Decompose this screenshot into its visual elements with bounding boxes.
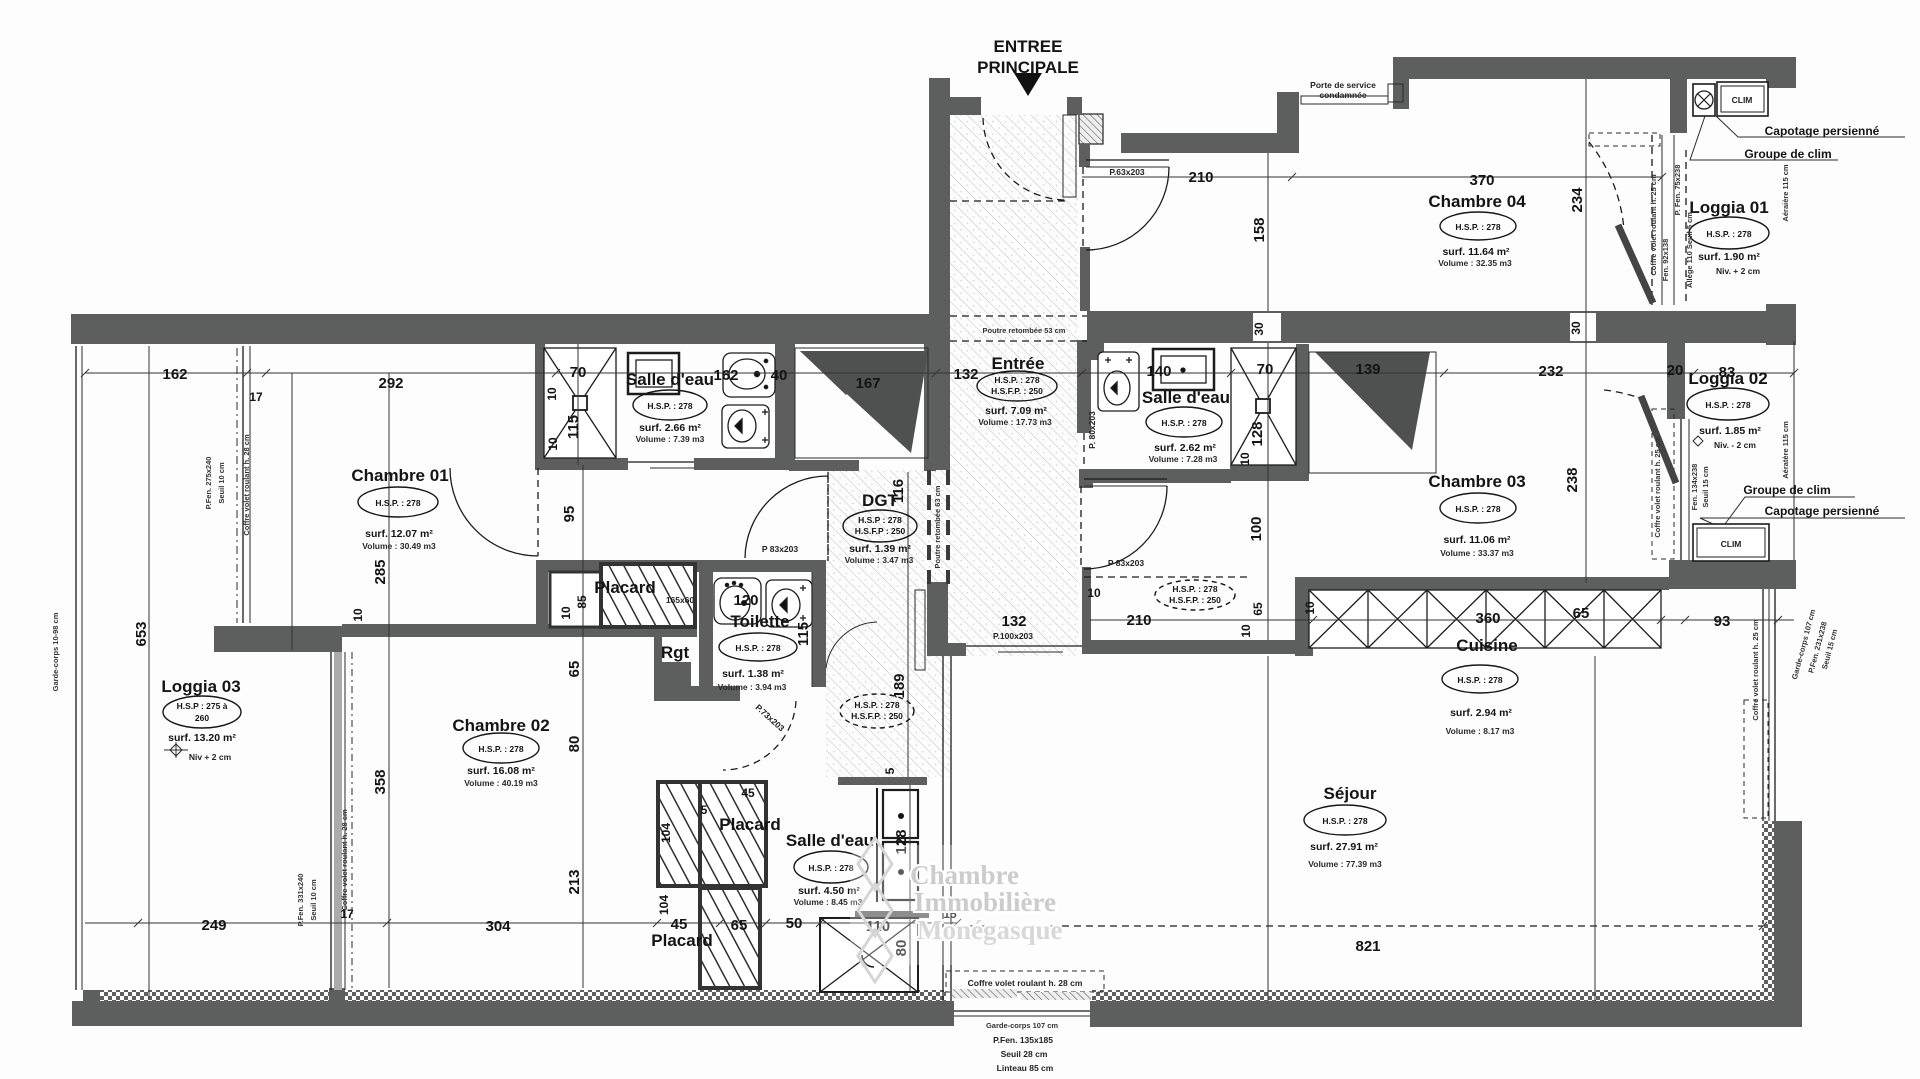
svg-text:Placard: Placard [719, 815, 780, 834]
svg-text:234: 234 [1569, 187, 1586, 213]
svg-text:116: 116 [890, 479, 907, 503]
svg-text:Garde-corps 10-98 cm: Garde-corps 10-98 cm [51, 612, 60, 691]
svg-text:H.S.P : 275 à: H.S.P : 275 à [177, 701, 228, 711]
svg-text:condamnée: condamnée [1319, 90, 1367, 100]
svg-text:292: 292 [378, 375, 403, 392]
svg-text:surf. 1.85 m²: surf. 1.85 m² [1699, 425, 1761, 437]
svg-text:10: 10 [546, 437, 560, 451]
svg-text:Volume : 7.28 m3: Volume : 7.28 m3 [1149, 454, 1218, 464]
svg-text:Seuil 15 cm: Seuil 15 cm [1701, 466, 1710, 508]
svg-text:P.100x203: P.100x203 [993, 631, 1033, 641]
svg-text:surf. 1.38 m²: surf. 1.38 m² [722, 668, 784, 680]
svg-text:189: 189 [891, 673, 908, 698]
svg-text:Volume : 33.37 m3: Volume : 33.37 m3 [1440, 548, 1514, 558]
svg-text:surf. 27.91 m²: surf. 27.91 m² [1310, 841, 1378, 853]
svg-text:Fen. 134x238: Fen. 134x238 [1690, 464, 1699, 511]
svg-text:Garde-corps 107 cm: Garde-corps 107 cm [986, 1021, 1058, 1030]
svg-text:50: 50 [786, 915, 803, 932]
svg-text:70: 70 [570, 364, 587, 381]
svg-text:10: 10 [1239, 624, 1253, 638]
svg-text:Fen. 92x138: Fen. 92x138 [1661, 239, 1670, 282]
svg-text:Salle d'eau: Salle d'eau [626, 370, 714, 389]
svg-text:Groupe de clim: Groupe de clim [1744, 147, 1831, 161]
svg-text:surf. 13.20 m²: surf. 13.20 m² [168, 732, 236, 744]
svg-text:surf. 1.90 m²: surf. 1.90 m² [1698, 251, 1760, 263]
svg-text:Loggia 03: Loggia 03 [161, 677, 240, 696]
svg-text:H.S.P. : 278: H.S.P. : 278 [1172, 584, 1217, 594]
svg-text:Volume : 32.35 m3: Volume : 32.35 m3 [1438, 258, 1512, 268]
svg-text:Groupe de clim: Groupe de clim [1743, 483, 1830, 497]
svg-text:Coffre volet roulant h. 25 cm: Coffre volet roulant h. 25 cm [1751, 619, 1760, 721]
svg-text:surf. 2.66 m²: surf. 2.66 m² [639, 422, 701, 434]
svg-text:H.S.F.P : 250: H.S.F.P : 250 [855, 526, 906, 536]
svg-text:95: 95 [561, 506, 578, 523]
svg-text:65: 65 [566, 661, 583, 678]
svg-text:93: 93 [1714, 613, 1731, 630]
svg-text:358: 358 [372, 769, 389, 794]
svg-text:H.S.P : 278: H.S.P : 278 [858, 515, 902, 525]
svg-text:10: 10 [1087, 586, 1101, 600]
svg-text:P 83x203: P 83x203 [1108, 558, 1145, 568]
svg-text:H.S.P. : 278: H.S.P. : 278 [735, 643, 780, 653]
svg-text:surf. 16.08 m²: surf. 16.08 m² [467, 765, 535, 777]
svg-text:Allège 110 Seuil 5 cm: Allège 110 Seuil 5 cm [1685, 212, 1694, 288]
svg-text:Chambre: Chambre [910, 860, 1019, 890]
svg-text:Coffre volet roulant h. 25 cm: Coffre volet roulant h. 25 cm [1653, 436, 1662, 538]
svg-text:65: 65 [1251, 602, 1265, 616]
svg-text:Coffre volet roulant h. 28 cm: Coffre volet roulant h. 28 cm [968, 978, 1083, 988]
svg-text:65: 65 [731, 917, 748, 934]
svg-text:ENTREE: ENTREE [994, 37, 1063, 56]
svg-text:H.S.P. : 278: H.S.P. : 278 [1457, 675, 1502, 685]
svg-text:Séjour: Séjour [1324, 784, 1377, 803]
svg-text:Volume : 8.17 m3: Volume : 8.17 m3 [1446, 726, 1515, 736]
svg-text:232: 232 [1538, 363, 1563, 380]
svg-text:Loggia 01: Loggia 01 [1689, 198, 1768, 217]
svg-text:P. Fen. 75x238: P. Fen. 75x238 [1673, 165, 1682, 216]
svg-text:45: 45 [741, 786, 755, 800]
svg-text:H.S.P. : 278: H.S.P. : 278 [994, 375, 1039, 385]
svg-text:P.Fen. 135x185: P.Fen. 135x185 [993, 1035, 1053, 1045]
svg-text:167: 167 [855, 375, 880, 392]
svg-text:10: 10 [1238, 452, 1252, 466]
svg-text:260: 260 [195, 713, 209, 723]
svg-text:Monégasque: Monégasque [917, 915, 1063, 945]
svg-text:H.S.P. : 278: H.S.P. : 278 [854, 700, 899, 710]
svg-text:Aératère 115 cm: Aératère 115 cm [1781, 421, 1790, 479]
svg-text:CLIM: CLIM [1721, 539, 1742, 549]
svg-text:210: 210 [1126, 612, 1151, 629]
svg-text:surf. 1.39 m²: surf. 1.39 m² [849, 543, 911, 555]
svg-text:P.Fen. 331x240: P.Fen. 331x240 [296, 874, 305, 927]
svg-text:653: 653 [133, 621, 150, 646]
svg-text:5: 5 [883, 767, 897, 774]
svg-text:H.S.P. : 278: H.S.P. : 278 [808, 863, 853, 873]
svg-text:10: 10 [351, 608, 365, 622]
svg-text:Toilette: Toilette [730, 612, 789, 631]
svg-text:H.S.P. : 278: H.S.P. : 278 [1706, 229, 1751, 239]
svg-text:H.S.P. : 278: H.S.P. : 278 [1455, 222, 1500, 232]
svg-text:H.S.P. : 278: H.S.P. : 278 [1455, 504, 1500, 514]
svg-text:Cuisine: Cuisine [1456, 636, 1517, 655]
svg-text:80: 80 [566, 736, 583, 753]
svg-text:Salle d'eau: Salle d'eau [1142, 388, 1230, 407]
svg-text:surf. 2.62 m²: surf. 2.62 m² [1154, 442, 1216, 454]
svg-text:Volume : 3.47 m3: Volume : 3.47 m3 [845, 555, 914, 565]
svg-text:Seuil 10 cm: Seuil 10 cm [309, 879, 318, 921]
svg-text:H.S.P. : 278: H.S.P. : 278 [1705, 400, 1750, 410]
svg-text:104: 104 [657, 895, 671, 915]
svg-text:Porte de service: Porte de service [1310, 80, 1376, 90]
svg-text:100: 100 [1248, 516, 1265, 541]
svg-text:PRINCIPALE: PRINCIPALE [977, 58, 1079, 77]
svg-text:238: 238 [1564, 467, 1581, 492]
svg-text:162: 162 [713, 367, 738, 384]
svg-text:H.S.P. : 278: H.S.P. : 278 [375, 498, 420, 508]
svg-text:Chambre 04: Chambre 04 [1428, 192, 1526, 211]
svg-text:70: 70 [1257, 361, 1274, 378]
svg-text:CLIM: CLIM [1732, 95, 1753, 105]
svg-text:304: 304 [485, 918, 511, 935]
svg-text:139: 139 [1355, 361, 1380, 378]
svg-text:210: 210 [1188, 169, 1213, 186]
svg-text:821: 821 [1355, 938, 1380, 955]
svg-text:132: 132 [1001, 613, 1026, 630]
svg-text:surf. 11.64 m²: surf. 11.64 m² [1442, 246, 1510, 258]
svg-text:249: 249 [201, 917, 226, 934]
svg-text:10: 10 [1303, 601, 1317, 615]
svg-text:115: 115 [795, 622, 812, 646]
svg-text:H.S.F.P. : 250: H.S.F.P. : 250 [991, 386, 1043, 396]
svg-text:Volume : 77.39 m3: Volume : 77.39 m3 [1308, 859, 1382, 869]
svg-text:Volume : 30.49 m3: Volume : 30.49 m3 [362, 541, 436, 551]
svg-text:370: 370 [1469, 172, 1494, 189]
svg-text:Capotage persienné: Capotage persienné [1765, 504, 1880, 518]
svg-text:Volume : 7.39 m3: Volume : 7.39 m3 [636, 434, 705, 444]
svg-text:30: 30 [1252, 322, 1266, 336]
svg-text:Niv. - 2 cm: Niv. - 2 cm [1714, 440, 1756, 450]
svg-text:Seuil 10 cm: Seuil 10 cm [217, 462, 226, 504]
svg-text:Rgt: Rgt [661, 643, 690, 662]
svg-text:Coffre volet roulant h. 28 cm: Coffre volet roulant h. 28 cm [242, 434, 251, 536]
svg-text:83: 83 [1719, 364, 1736, 381]
svg-text:Volume : 40.19 m3: Volume : 40.19 m3 [464, 778, 538, 788]
svg-text:Poutre retombée 63 cm: Poutre retombée 63 cm [933, 485, 942, 568]
svg-text:H.S.P. : 278: H.S.P. : 278 [478, 744, 523, 754]
svg-text:115: 115 [565, 415, 582, 439]
svg-text:Capotage persienné: Capotage persienné [1765, 124, 1880, 138]
svg-text:Volume : 3.94 m3: Volume : 3.94 m3 [718, 682, 787, 692]
svg-text:Coffre volet roulant h. 25 cm: Coffre volet roulant h. 25 cm [1649, 174, 1658, 276]
svg-text:Entrée: Entrée [992, 354, 1045, 373]
svg-text:P.Fen. 275x240: P.Fen. 275x240 [204, 457, 213, 510]
svg-text:Placard: Placard [651, 931, 712, 950]
svg-text:132: 132 [953, 366, 978, 383]
svg-text:17: 17 [249, 390, 263, 404]
svg-text:H.S.F.P. : 250: H.S.F.P. : 250 [1169, 595, 1221, 605]
svg-text:Chambre 02: Chambre 02 [452, 716, 549, 735]
svg-text:120: 120 [733, 592, 758, 609]
svg-text:158: 158 [1251, 217, 1268, 242]
svg-text:85: 85 [575, 595, 589, 609]
svg-text:P 83x203: P 83x203 [762, 544, 799, 554]
svg-text:213: 213 [566, 869, 583, 894]
svg-text:165x60: 165x60 [666, 595, 695, 605]
svg-text:P. 80x203: P. 80x203 [1087, 411, 1097, 449]
svg-text:Niv + 2 cm: Niv + 2 cm [189, 752, 232, 762]
svg-text:30: 30 [1569, 321, 1583, 335]
svg-text:Chambre 01: Chambre 01 [351, 466, 448, 485]
svg-text:128: 128 [1249, 421, 1266, 446]
svg-text:Coffre volet roulant h. 28 cm: Coffre volet roulant h. 28 cm [340, 809, 349, 911]
svg-text:Poutre retombée 53 cm: Poutre retombée 53 cm [983, 326, 1066, 335]
svg-text:P.63x203: P.63x203 [1109, 167, 1145, 177]
svg-text:285: 285 [372, 559, 389, 584]
svg-text:Niv. + 2 cm: Niv. + 2 cm [1716, 266, 1760, 276]
svg-text:Linteau 85 cm: Linteau 85 cm [997, 1063, 1054, 1073]
svg-text:5: 5 [701, 803, 708, 817]
svg-text:140: 140 [1146, 363, 1171, 380]
svg-text:Aéraière 115 cm: Aéraière 115 cm [1781, 164, 1790, 221]
svg-text:H.S.P. : 278: H.S.P. : 278 [647, 401, 692, 411]
svg-text:20: 20 [1667, 362, 1684, 379]
svg-text:surf. 11.06 m²: surf. 11.06 m² [1443, 534, 1511, 546]
svg-text:Immobilière: Immobilière [914, 887, 1056, 917]
svg-text:10: 10 [559, 606, 573, 620]
svg-text:H.S.F.P. : 250: H.S.F.P. : 250 [851, 711, 903, 721]
svg-text:H.S.P. : 278: H.S.P. : 278 [1322, 816, 1367, 826]
svg-text:Placard: Placard [594, 578, 655, 597]
svg-text:surf. 2.94 m²: surf. 2.94 m² [1450, 707, 1512, 719]
svg-text:H.S.P. : 278: H.S.P. : 278 [1161, 418, 1206, 428]
svg-text:Chambre 03: Chambre 03 [1428, 472, 1525, 491]
svg-text:10: 10 [545, 387, 559, 401]
svg-text:65: 65 [1573, 605, 1590, 622]
svg-text:104: 104 [659, 823, 673, 843]
svg-text:Seuil 28 cm: Seuil 28 cm [1001, 1049, 1048, 1059]
svg-text:40: 40 [771, 367, 788, 384]
svg-text:162: 162 [162, 366, 187, 383]
svg-text:surf. 12.07 m²: surf. 12.07 m² [365, 528, 433, 540]
svg-text:Volume : 17.73 m3: Volume : 17.73 m3 [978, 417, 1052, 427]
svg-text:surf. 7.09 m²: surf. 7.09 m² [985, 405, 1047, 417]
svg-text:45: 45 [671, 916, 688, 933]
svg-text:360: 360 [1475, 610, 1500, 627]
